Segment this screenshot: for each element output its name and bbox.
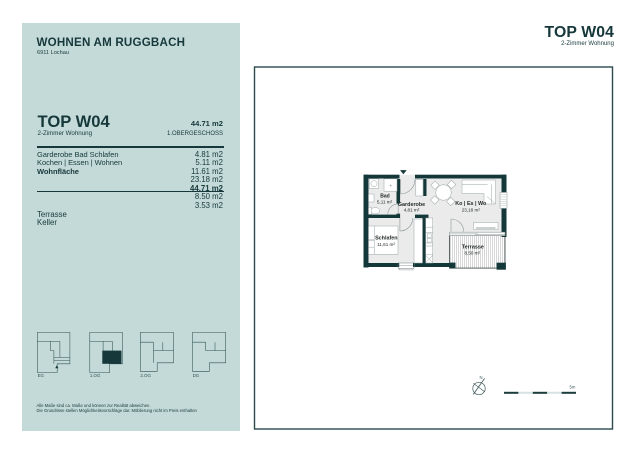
svg-text:5m: 5m <box>570 385 576 390</box>
svg-text:Ko | Es | Wo: Ko | Es | Wo <box>455 201 487 207</box>
svg-text:N: N <box>480 375 483 380</box>
svg-text:8,50 m²: 8,50 m² <box>465 251 481 256</box>
svg-text:23,18 m²: 23,18 m² <box>462 208 481 213</box>
svg-text:EG: EG <box>38 373 45 378</box>
svg-text:Terrasse: Terrasse <box>462 245 484 251</box>
svg-text:5,11 m²: 5,11 m² <box>377 199 393 204</box>
svg-text:2.OG: 2.OG <box>140 373 151 378</box>
svg-text:DG: DG <box>193 373 200 378</box>
svg-text:1.OG: 1.OG <box>90 373 101 378</box>
svg-text:Schlafen: Schlafen <box>375 236 397 242</box>
svg-text:11,61 m²: 11,61 m² <box>377 242 395 247</box>
svg-text:4,81 m²: 4,81 m² <box>404 208 420 213</box>
